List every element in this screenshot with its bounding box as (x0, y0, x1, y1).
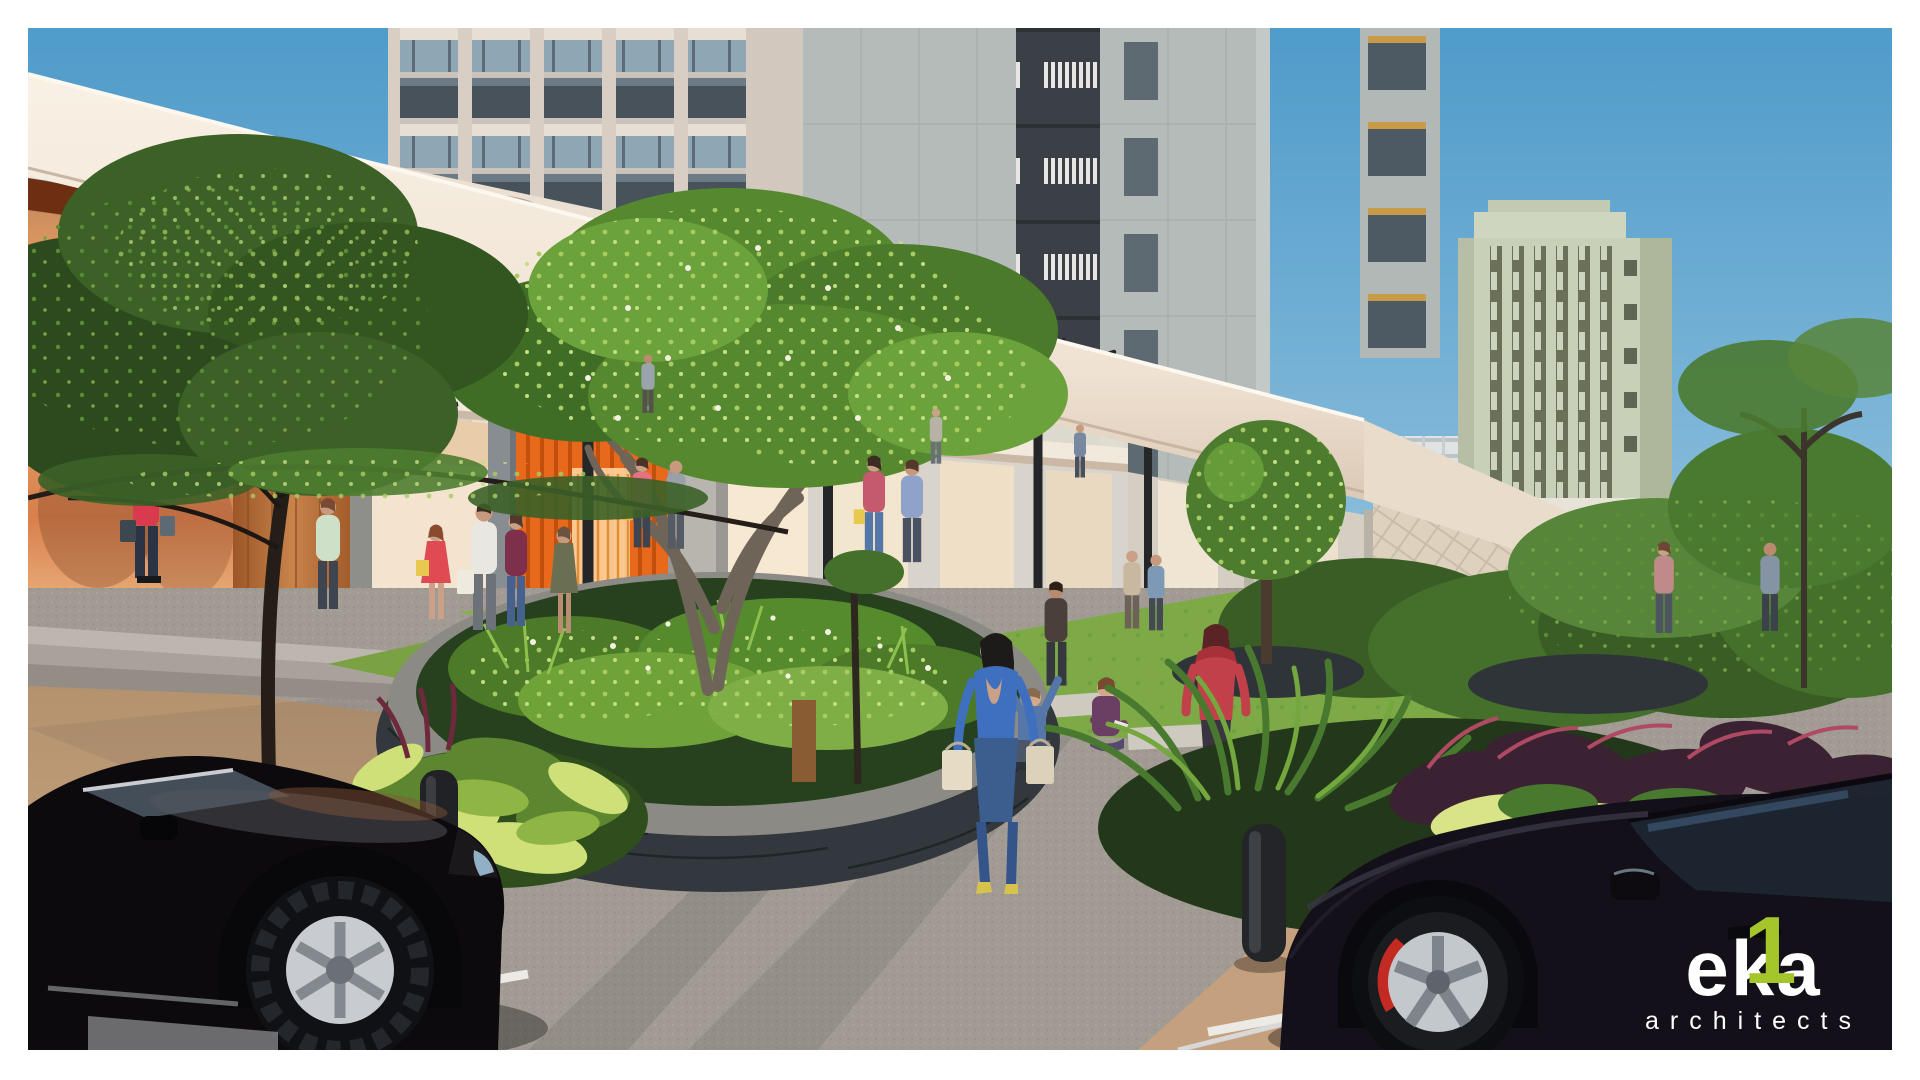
logo-numeral-one: 1 (1743, 903, 1798, 999)
sign-post (792, 700, 816, 782)
rendering-frame: SPHYNX S THE SOL (0, 0, 1920, 1080)
eka-architects-logo: eka 1 architects (1645, 929, 1862, 1034)
logo-subtitle: architects (1645, 1009, 1862, 1034)
truck-mirror (140, 816, 178, 840)
tower-right-wing (1360, 28, 1440, 358)
architectural-rendering: SPHYNX S THE SOL (28, 28, 1892, 1050)
logo-letter-e: e (1685, 924, 1730, 1012)
logo-wordmark: eka 1 (1685, 929, 1821, 1007)
scene-canvas: SPHYNX S THE SOL (28, 28, 1892, 1050)
